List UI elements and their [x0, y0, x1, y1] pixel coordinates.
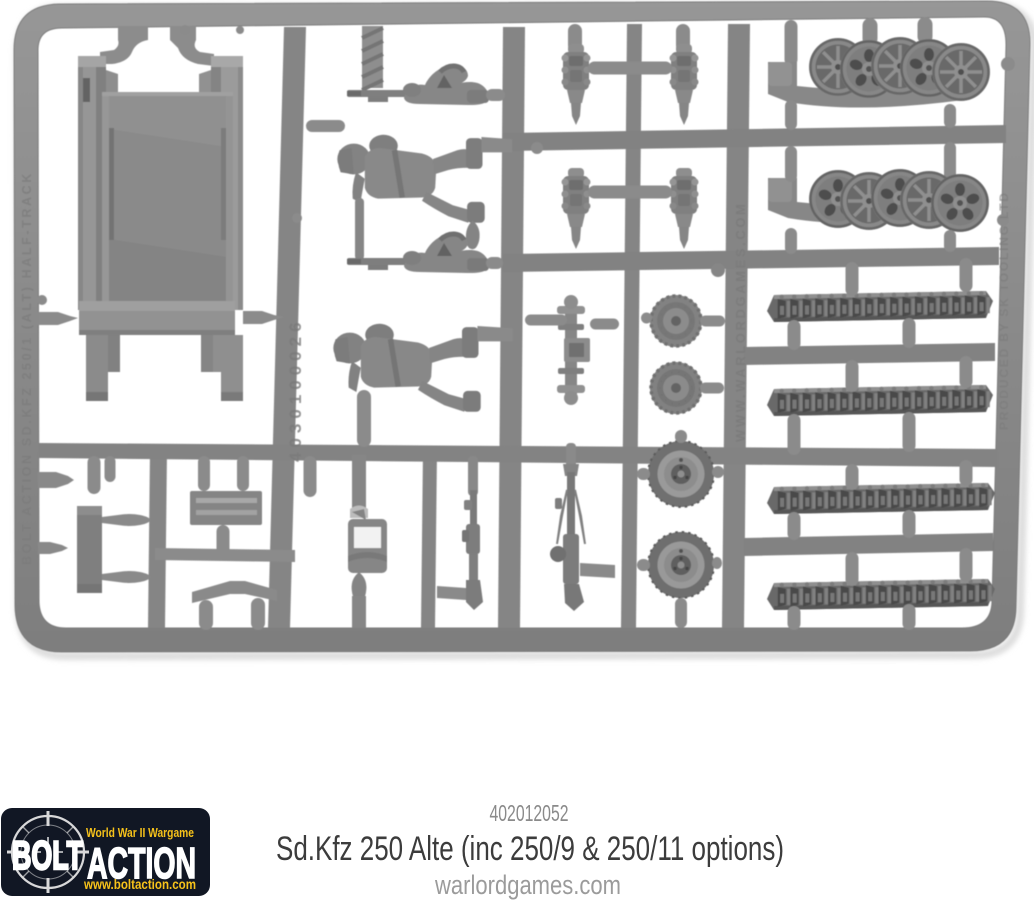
svg-text:BOLT: BOLT [12, 834, 83, 878]
svg-text:warlordgames.com: warlordgames.com [434, 870, 621, 900]
svg-text:World War II Wargame: World War II Wargame [86, 825, 194, 840]
svg-text:WWW.WARLORDGAMES.COM: WWW.WARLORDGAMES.COM [733, 202, 748, 442]
svg-text:4030100026: 4030100026 [286, 317, 305, 462]
svg-text:Sd.Kfz 250 Alte (inc 250/9 & 2: Sd.Kfz 250 Alte (inc 250/9 & 250/11 opti… [276, 830, 784, 868]
svg-text:BOLT ACTION SD.KFZ 250/1 (ALT): BOLT ACTION SD.KFZ 250/1 (ALT) HALF-TRAC… [20, 171, 34, 565]
svg-text:www.boltaction.com: www.boltaction.com [83, 876, 196, 892]
svg-text:PRODUCED BY SK TOOLING LTD: PRODUCED BY SK TOOLING LTD [997, 191, 1011, 430]
svg-text:402012052: 402012052 [490, 800, 569, 826]
